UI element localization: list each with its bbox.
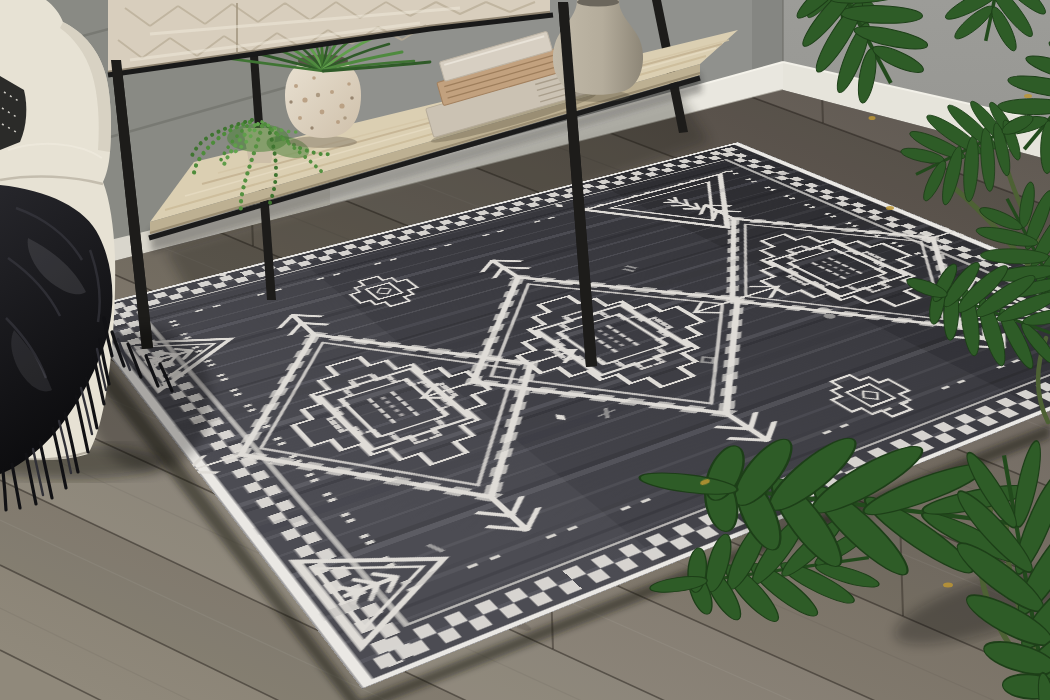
philodendron-plant <box>631 0 1050 700</box>
foreground-furniture <box>0 0 1050 700</box>
console-table <box>108 0 738 367</box>
living-room-scene <box>0 0 1050 700</box>
